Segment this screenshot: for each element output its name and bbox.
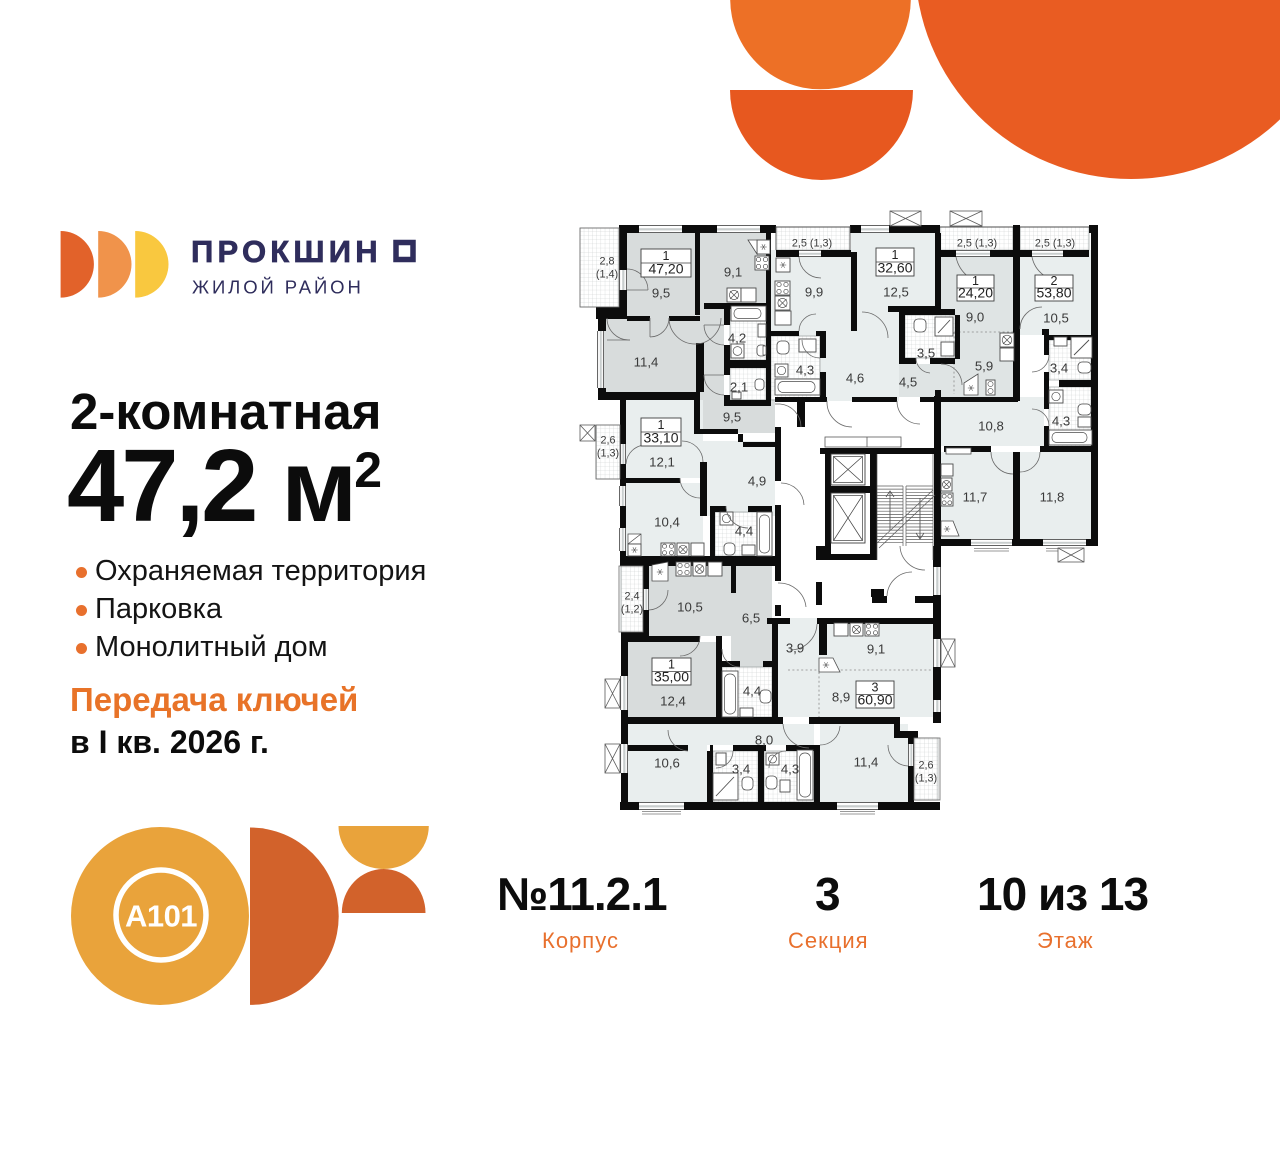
svg-text:4,5: 4,5 xyxy=(899,374,917,389)
svg-text:9,1: 9,1 xyxy=(724,264,742,279)
svg-text:2,6: 2,6 xyxy=(918,760,933,772)
svg-text:12,5: 12,5 xyxy=(883,284,909,299)
svg-text:10,4: 10,4 xyxy=(654,514,680,529)
svg-text:3,9: 3,9 xyxy=(786,640,804,655)
svg-text:53,80: 53,80 xyxy=(1036,284,1071,300)
svg-text:10,5: 10,5 xyxy=(1043,310,1069,325)
svg-text:10,6: 10,6 xyxy=(654,755,680,770)
svg-text:9,9: 9,9 xyxy=(805,284,823,299)
svg-text:12,1: 12,1 xyxy=(649,454,675,469)
svg-text:8,9: 8,9 xyxy=(832,689,850,704)
svg-text:(1,4): (1,4) xyxy=(596,269,618,281)
svg-text:11,8: 11,8 xyxy=(1040,489,1065,504)
svg-text:A101: A101 xyxy=(125,898,197,933)
svg-text:11,4: 11,4 xyxy=(854,754,879,769)
svg-text:10,5: 10,5 xyxy=(677,599,703,614)
svg-text:9,5: 9,5 xyxy=(723,409,741,424)
svg-text:(1,3): (1,3) xyxy=(915,773,937,785)
svg-text:4,2: 4,2 xyxy=(728,330,746,345)
svg-text:(1,3): (1,3) xyxy=(597,448,619,460)
svg-text:ПРОКШИН: ПРОКШИН xyxy=(191,234,382,269)
svg-text:9,1: 9,1 xyxy=(867,641,885,656)
svg-text:2,1: 2,1 xyxy=(730,379,748,394)
svg-text:2,5 (1,3): 2,5 (1,3) xyxy=(792,238,832,250)
svg-text:8,0: 8,0 xyxy=(755,732,773,747)
svg-text:11,4: 11,4 xyxy=(634,354,659,369)
svg-text:3,4: 3,4 xyxy=(1050,360,1068,375)
svg-text:4,3: 4,3 xyxy=(796,362,814,377)
svg-text:12,4: 12,4 xyxy=(660,693,686,708)
svg-text:2,6: 2,6 xyxy=(600,435,615,447)
svg-text:3,4: 3,4 xyxy=(732,761,750,776)
svg-text:32,60: 32,60 xyxy=(877,259,912,275)
svg-text:ЖИЛОЙ РАЙОН: ЖИЛОЙ РАЙОН xyxy=(192,277,364,298)
svg-text:2,8: 2,8 xyxy=(599,256,614,268)
svg-text:4,4: 4,4 xyxy=(743,683,761,698)
svg-text:10,8: 10,8 xyxy=(978,418,1004,433)
svg-text:(1,2): (1,2) xyxy=(621,604,643,616)
svg-text:2,5 (1,3): 2,5 (1,3) xyxy=(957,238,997,250)
svg-text:2,5 (1,3): 2,5 (1,3) xyxy=(1035,238,1075,250)
svg-text:4,4: 4,4 xyxy=(735,523,753,538)
svg-text:3,5: 3,5 xyxy=(917,345,935,360)
svg-text:5,9: 5,9 xyxy=(975,358,993,373)
svg-text:4,6: 4,6 xyxy=(846,370,864,385)
svg-text:9,0: 9,0 xyxy=(966,309,984,324)
svg-text:2,4: 2,4 xyxy=(624,591,639,603)
svg-text:33,10: 33,10 xyxy=(643,429,678,445)
svg-text:6,5: 6,5 xyxy=(742,610,760,625)
svg-text:47,20: 47,20 xyxy=(648,260,683,276)
svg-text:11,7: 11,7 xyxy=(963,489,988,504)
svg-text:35,00: 35,00 xyxy=(654,668,689,684)
svg-text:4,9: 4,9 xyxy=(748,473,766,488)
svg-text:4,3: 4,3 xyxy=(1052,413,1070,428)
svg-text:60,90: 60,90 xyxy=(857,691,892,707)
svg-text:9,5: 9,5 xyxy=(652,285,670,300)
svg-text:24,20: 24,20 xyxy=(958,284,993,300)
svg-text:4,3: 4,3 xyxy=(781,761,799,776)
